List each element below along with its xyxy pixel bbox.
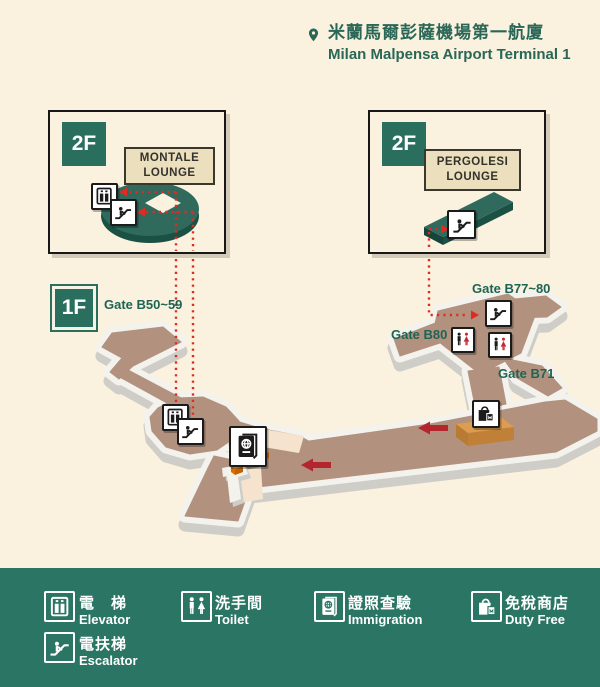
duty-free-icon xyxy=(471,591,502,622)
gate-label-b71: Gate B71 xyxy=(498,366,554,381)
duty-free-icon xyxy=(472,400,500,428)
legend-label-zh: 免稅商店 xyxy=(505,592,569,613)
floor-badge-1f: 1F xyxy=(50,284,98,332)
legend-label-zh: 證照查驗 xyxy=(348,592,412,613)
legend-label-en: Toilet xyxy=(215,612,249,627)
legend-bar: 電 梯 Elevator 電扶梯 Escalator 洗手間 Toilet 證照… xyxy=(0,568,600,687)
gate-label-b50-59: Gate B50~59 xyxy=(104,297,182,312)
escalator-icon xyxy=(177,418,204,445)
gate-label-b80: Gate B80 xyxy=(391,327,447,342)
montale-lounge-label: MONTALE LOUNGE xyxy=(124,147,215,185)
immigration-icon xyxy=(314,591,345,622)
escalator-icon xyxy=(44,632,75,663)
escalator-icon xyxy=(485,300,512,327)
toilet-icon xyxy=(451,327,475,353)
toilet-icon xyxy=(181,591,212,622)
page-title-en: Milan Malpensa Airport Terminal 1 xyxy=(328,45,571,65)
interior-wall xyxy=(222,464,251,507)
immigration-icon xyxy=(229,426,267,467)
pergolesi-lounge-label: PERGOLESI LOUNGE xyxy=(424,149,521,191)
legend-label-zh: 電扶梯 xyxy=(79,633,127,654)
legend-label-en: Immigration xyxy=(348,612,422,627)
gate-label-b77-80: Gate B77~80 xyxy=(472,281,550,296)
toilet-icon xyxy=(488,332,512,358)
escalator-icon xyxy=(447,210,476,239)
legend-label-zh: 洗手間 xyxy=(215,592,263,613)
flow-arrow-right xyxy=(418,422,448,435)
escalator-icon xyxy=(110,199,137,226)
legend-label-en: Escalator xyxy=(79,653,138,668)
legend-label-en: Elevator xyxy=(79,612,130,627)
location-pin-icon xyxy=(306,25,321,45)
legend-label-en: Duty Free xyxy=(505,612,565,627)
legend-label-zh: 電 梯 xyxy=(79,592,127,613)
page-title-zh: 米蘭馬爾彭薩機場第一航廈 xyxy=(328,22,571,45)
flow-arrow-left xyxy=(301,459,331,472)
map-header: 米蘭馬爾彭薩機場第一航廈 Milan Malpensa Airport Term… xyxy=(306,22,571,65)
floor-badge-2f-left: 2F xyxy=(62,122,106,166)
ramp-area-lower xyxy=(239,467,263,503)
floor-badge-2f-right: 2F xyxy=(382,122,426,166)
elevator-icon xyxy=(44,591,75,622)
